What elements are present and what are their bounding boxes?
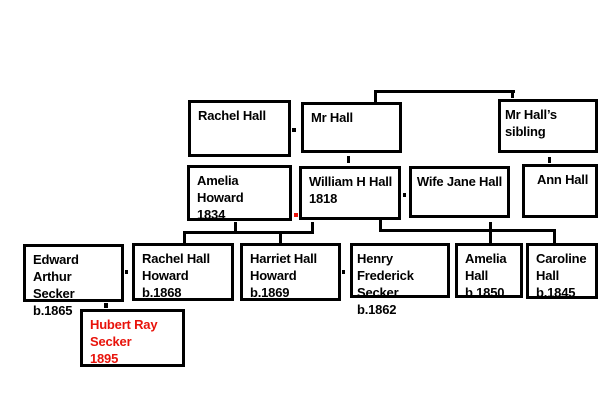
connector-sibling-horizontal (374, 90, 515, 93)
marriage-dot-william-jane (403, 193, 406, 197)
person-name: Hubert Ray Secker 1895 (83, 312, 182, 367)
connector-right-family-riser-william (379, 220, 382, 232)
person-name: Caroline Hall b.1845 (529, 246, 595, 301)
connector-sibling-ann-dash (548, 157, 551, 163)
person-box-harriet-hall-howard: Harriet Hall Howard b.1869 (240, 243, 341, 301)
marriage-dot-rachel-mrhall (292, 128, 296, 132)
person-name: Rachel Hall (191, 103, 288, 124)
connector-right-family-horizontal (379, 229, 556, 232)
person-name: Harriet Hall Howard b.1869 (243, 246, 338, 301)
person-box-ann-hall: Ann Hall (522, 164, 598, 218)
connector-right-family-drop-caroline (553, 229, 556, 243)
person-box-edward-arthur-secker: Edward Arthur Secker b.1865 (23, 244, 124, 302)
person-box-mr-halls-sibling: Mr Hall’s sibling (498, 99, 598, 153)
person-name: Mr Hall (304, 105, 399, 126)
person-name: Ann Hall (525, 167, 595, 188)
person-name: Rachel Hall Howard b.1868 (135, 246, 231, 301)
person-box-amelia-hall: Amelia Hall b.1850 (455, 243, 523, 298)
person-box-henry-frederick-secker: Henry Frederick Secker b.1862 (350, 243, 450, 298)
connector-left-family-riser-william (311, 222, 314, 234)
connector-mrhall-william-dash (347, 156, 350, 163)
person-name: William H Hall 1818 (302, 169, 398, 207)
person-name: Mr Hall’s sibling (501, 102, 595, 140)
person-box-amelia-howard: Amelia Howard 1834 (187, 165, 292, 221)
person-name: Henry Frederick Secker b.1862 (353, 246, 447, 318)
person-box-mr-hall: Mr Hall (301, 102, 402, 153)
person-box-caroline-hall: Caroline Hall b.1845 (526, 243, 598, 299)
family-tree-diagram: Rachel Hall Mr Hall Mr Hall’s sibling Am… (0, 0, 600, 408)
person-name: Amelia Hall b.1850 (458, 246, 520, 301)
person-name: Wife Jane Hall (412, 169, 507, 190)
person-box-rachel-hall-howard: Rachel Hall Howard b.1868 (132, 243, 234, 301)
person-box-rachel-hall: Rachel Hall (188, 100, 291, 157)
person-name: Amelia Howard 1834 (190, 168, 289, 223)
connector-left-family-riser-amelia (234, 222, 237, 232)
person-box-wife-jane-hall: Wife Jane Hall (409, 166, 510, 218)
connector-right-family-mid-vertical (489, 222, 492, 243)
marriage-dot-amelia-william-red (294, 213, 298, 217)
person-box-william-h-hall: William H Hall 1818 (299, 166, 401, 220)
person-box-hubert-ray-secker: Hubert Ray Secker 1895 (80, 309, 185, 367)
marriage-dot-harriet-henry (342, 270, 345, 274)
connector-sibling-right-stub (511, 90, 514, 98)
connector-left-family-horizontal (183, 231, 314, 234)
marriage-dot-edward-rachel (125, 270, 128, 274)
